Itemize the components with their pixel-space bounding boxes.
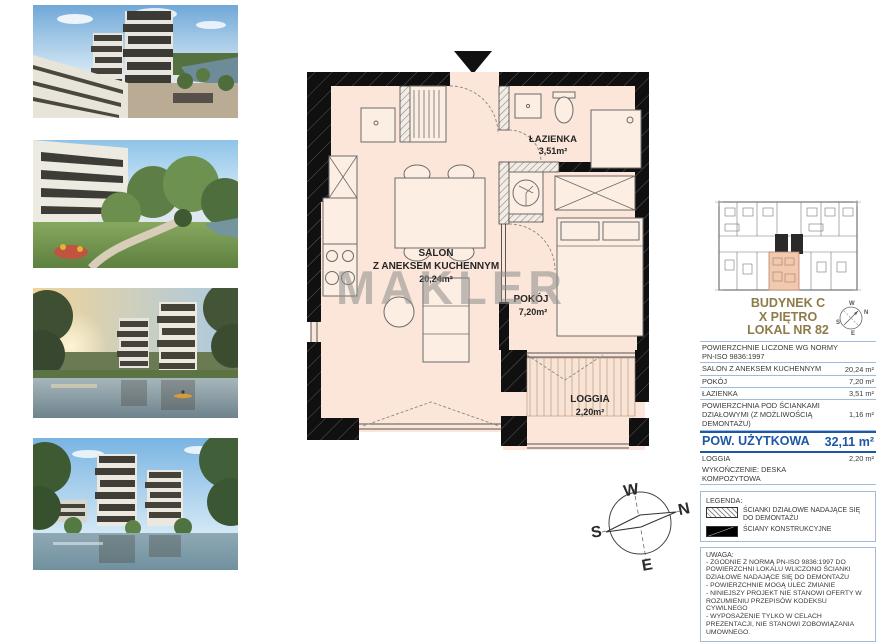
row-label: ŁAZIENKA xyxy=(702,389,738,398)
room-area-loggia: 2,20m² xyxy=(576,407,605,417)
photo-pond-image xyxy=(33,438,238,570)
hatched-wall-swatch-icon xyxy=(706,507,738,518)
unit-header: BUDYNEK C X PIĘTRO LOKAL NR 82 W N S E xyxy=(700,297,876,339)
photo-aerial-buildings xyxy=(33,5,238,118)
total-area-value: 32,11 m² xyxy=(825,435,874,449)
photo-river-sunset xyxy=(33,288,238,418)
table-row: POWIERZCHNIA POD ŚCIANKAMI DZIAŁOWYMI (Z… xyxy=(700,400,876,431)
mini-compass-s: S xyxy=(836,320,840,326)
compass-w: W xyxy=(622,481,641,500)
legend-item-label: ŚCIANKI DZIAŁOWE NADAJĄCE SIĘ DO DEMONTA… xyxy=(743,507,870,523)
photo-garden-playground xyxy=(33,140,238,268)
key-plan xyxy=(713,200,863,295)
mini-compass-n: N xyxy=(864,310,868,316)
row-value: 2,20 m² xyxy=(849,454,874,463)
note-line: - ZGODNIE Z NORMĄ PN-ISO 9836:1997 DO PO… xyxy=(706,559,870,582)
note-title: UWAGA: xyxy=(706,552,870,559)
info-panel: BUDYNEK C X PIĘTRO LOKAL NR 82 W N S E P… xyxy=(700,200,876,642)
solid-wall-swatch-icon xyxy=(706,526,738,537)
total-area-label: POW. UŻYTKOWA xyxy=(702,437,810,446)
loggia-row: LOGGIA 2,20 m² xyxy=(700,453,876,464)
legend-title: LEGENDA: xyxy=(706,496,870,505)
mini-compass-rose: W N S E xyxy=(834,298,870,338)
room-label-loggia: LOGGIA xyxy=(570,394,609,405)
photo-sunset-image xyxy=(33,288,238,418)
table-header-line1: POWIERZCHNIE LICZONE WG NORMY xyxy=(702,343,874,352)
compass-s: S xyxy=(590,523,603,541)
table-header: POWIERZCHNIE LICZONE WG NORMY PN-ISO 983… xyxy=(700,342,876,363)
key-plan-unit-highlight xyxy=(769,252,799,290)
legend-item-partition: ŚCIANKI DZIAŁOWE NADAJĄCE SIĘ DO DEMONTA… xyxy=(706,507,870,523)
note-line: - NINIEJSZY PROJEKT NIE STANOWI OFERTY W… xyxy=(706,590,870,613)
entrance-arrow-icon xyxy=(454,51,492,74)
row-label: WYKOŃCZENIE: DESKA KOMPOZYTOWA xyxy=(702,465,824,483)
watermark: MAKLER xyxy=(336,260,567,315)
legend-item-structural: ŚCIANY KONSTRUKCYJNE xyxy=(706,526,870,537)
compass-e: E xyxy=(640,556,654,573)
floor-plan-drawing: ŁAZIENKA 3,51m² SALON Z ANEKSEM KUCHENNY… xyxy=(303,50,657,462)
room-area-bathroom: 3,51m² xyxy=(539,146,568,156)
row-value: 1,16 m² xyxy=(849,410,874,419)
mini-compass-e: E xyxy=(851,331,855,337)
table-row: ŁAZIENKA 3,51 m² xyxy=(700,388,876,400)
note-line: - POWIERZCHNIE MOGĄ ULEC ZMIANIE xyxy=(706,582,870,590)
area-table: POWIERZCHNIE LICZONE WG NORMY PN-ISO 983… xyxy=(700,341,876,485)
finish-row: WYKOŃCZENIE: DESKA KOMPOZYTOWA xyxy=(700,464,876,485)
photo-pond-towers xyxy=(33,438,238,570)
row-value: 3,51 m² xyxy=(849,389,874,398)
room-label-bathroom: ŁAZIENKA xyxy=(529,134,577,145)
compass-n: N xyxy=(677,500,692,519)
row-value: 20,24 m² xyxy=(845,365,874,374)
row-value: 7,20 m² xyxy=(849,377,874,386)
note-line: - WYPOSAŻENIE TYLKO W CELACH PREZENTACJI… xyxy=(706,613,870,636)
row-label: LOGGIA xyxy=(702,454,730,463)
table-row: SALON Z ANEKSEM KUCHENNYM 20,24 m² xyxy=(700,363,876,375)
note-box: UWAGA: - ZGODNIE Z NORMĄ PN-ISO 9836:199… xyxy=(700,547,876,642)
total-area-row: POW. UŻYTKOWA 32,11 m² xyxy=(700,431,876,453)
row-label: SALON Z ANEKSEM KUCHENNYM xyxy=(702,364,821,373)
row-label: POWIERZCHNIA POD ŚCIANKAMI DZIAŁOWYMI (Z… xyxy=(702,401,824,429)
floor-plan: ŁAZIENKA 3,51m² SALON Z ANEKSEM KUCHENNY… xyxy=(303,50,657,462)
room-label-salon: SALON xyxy=(419,248,454,259)
table-row: POKÓJ 7,20 m² xyxy=(700,376,876,388)
legend-item-label: ŚCIANY KONSTRUKCYJNE xyxy=(743,526,831,534)
photo-garden-image xyxy=(33,140,238,268)
table-header-line2: PN-ISO 9836:1997 xyxy=(702,352,874,361)
row-label: POKÓJ xyxy=(702,377,727,386)
compass-needle xyxy=(606,512,676,532)
photo-aerial-image xyxy=(33,5,238,118)
mini-compass-w: W xyxy=(849,301,855,307)
legend-box: LEGENDA: ŚCIANKI DZIAŁOWE NADAJĄCE SIĘ D… xyxy=(700,491,876,541)
compass-rose: W N S E xyxy=(590,481,694,573)
